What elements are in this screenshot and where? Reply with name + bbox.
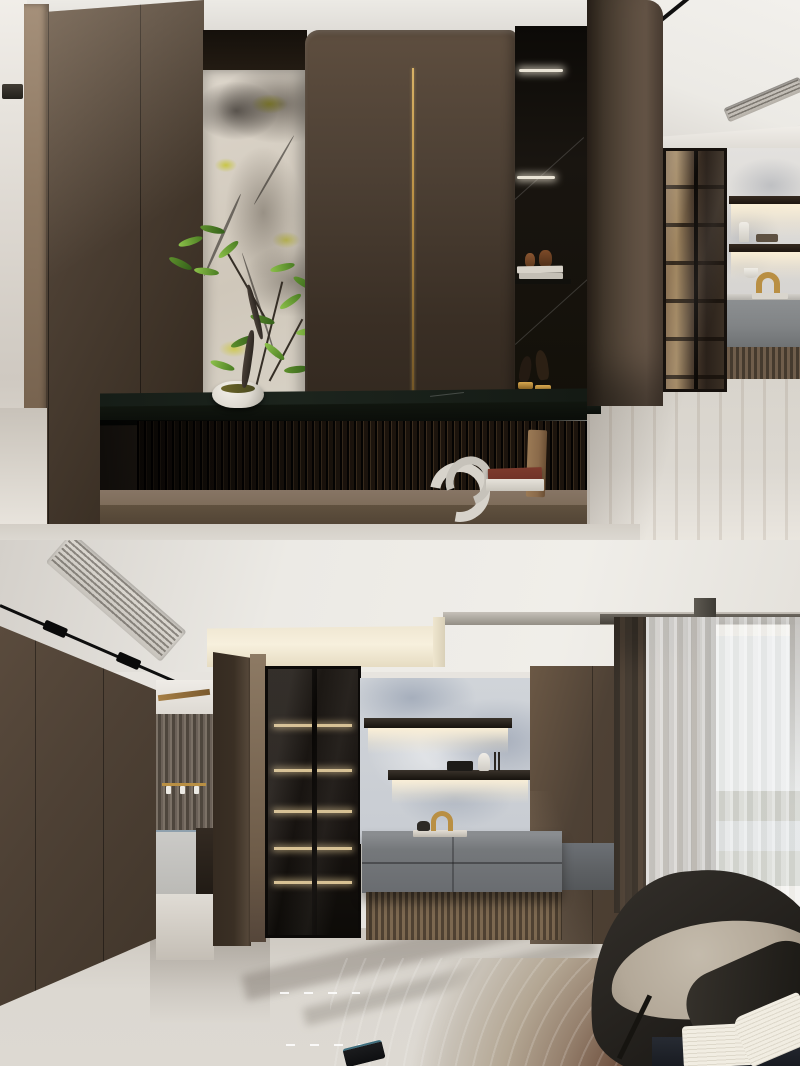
glossy-floor	[156, 894, 214, 960]
black-speaker-box	[447, 761, 473, 771]
marble-tray	[413, 830, 467, 837]
ink-vein	[253, 135, 295, 205]
wall-vent-slot	[2, 84, 23, 99]
amber-vase	[525, 253, 535, 267]
marble-vein	[430, 392, 464, 397]
hallway-opening-view	[156, 680, 214, 960]
ribbon-sculpture	[428, 452, 486, 512]
panel-joint	[35, 626, 36, 1006]
glass-reflection	[268, 669, 358, 935]
leaf	[194, 266, 220, 276]
leaf	[210, 358, 236, 372]
floating-shelf-lower	[388, 770, 532, 780]
brass-arch	[431, 811, 453, 831]
decorative-sticks	[494, 752, 502, 771]
floating-shelf-upper	[364, 718, 512, 728]
niche-soffit-shadow	[203, 30, 307, 74]
drawer-seam	[452, 831, 454, 893]
gray-console-cabinet	[727, 300, 800, 347]
niche-shelf-board	[515, 279, 571, 284]
figurine	[534, 349, 550, 380]
figurine-gold-base	[518, 382, 533, 389]
fluted-wood-skirt	[727, 347, 800, 379]
sculpture-base	[752, 293, 788, 299]
light-wood-side-panel	[24, 4, 49, 416]
brass-arch	[756, 272, 780, 294]
leaf	[168, 255, 194, 272]
center-wardrobe-cabinet	[305, 30, 517, 414]
white-planter-pot	[212, 381, 264, 408]
drawer-seam	[362, 862, 562, 864]
led-strip-light	[517, 176, 555, 179]
white-vase	[478, 753, 490, 771]
wood-pillar	[213, 652, 251, 946]
fluted-wood-panel	[366, 892, 562, 940]
shelf-underlight	[392, 780, 528, 804]
led-strip-light	[519, 69, 563, 72]
cove-light-corner	[433, 617, 445, 667]
pendant-shade	[180, 786, 185, 794]
gray-floating-vanity	[362, 831, 562, 893]
shelf-underlight	[368, 728, 508, 754]
leaf	[178, 234, 204, 248]
leaf	[200, 223, 226, 235]
brass-handle-groove	[412, 68, 414, 404]
planter-soil	[221, 384, 255, 393]
pendant-shade	[166, 786, 171, 794]
brass-arch-faucet	[421, 811, 465, 837]
glass-reflection	[666, 151, 724, 389]
dark-teapot	[417, 821, 430, 831]
stacked-books	[756, 234, 778, 242]
foyer-cabinet-scene	[0, 0, 800, 540]
white-sideboard	[156, 832, 200, 894]
white-vase	[739, 222, 749, 242]
leaf	[278, 292, 303, 312]
leaf	[270, 261, 296, 274]
interior-render-collage	[0, 0, 800, 1066]
living-room-vanity-scene	[0, 540, 800, 1066]
panel-joint	[103, 626, 104, 1006]
smoked-glass-display-cabinet	[265, 666, 361, 938]
light-wood-side-strip	[250, 654, 266, 942]
white-book	[486, 479, 544, 491]
stone-vein	[515, 137, 584, 225]
backlit-shelf-upper	[729, 196, 800, 204]
figurine	[518, 355, 533, 383]
louvered-wall	[156, 714, 214, 836]
brass-handle-sculpture	[752, 272, 788, 300]
foyer-floor-strip	[0, 524, 640, 540]
floor-sliver-left	[0, 408, 47, 540]
glass-display-cabinet	[663, 148, 727, 392]
backlit-shelf-lower	[729, 244, 800, 252]
black-stone-display-niche	[515, 26, 593, 412]
dark-table	[196, 828, 214, 898]
branch	[225, 250, 266, 320]
pendant-shade	[194, 786, 199, 794]
wood-pillar-right	[587, 0, 663, 406]
amber-vase	[539, 250, 552, 267]
